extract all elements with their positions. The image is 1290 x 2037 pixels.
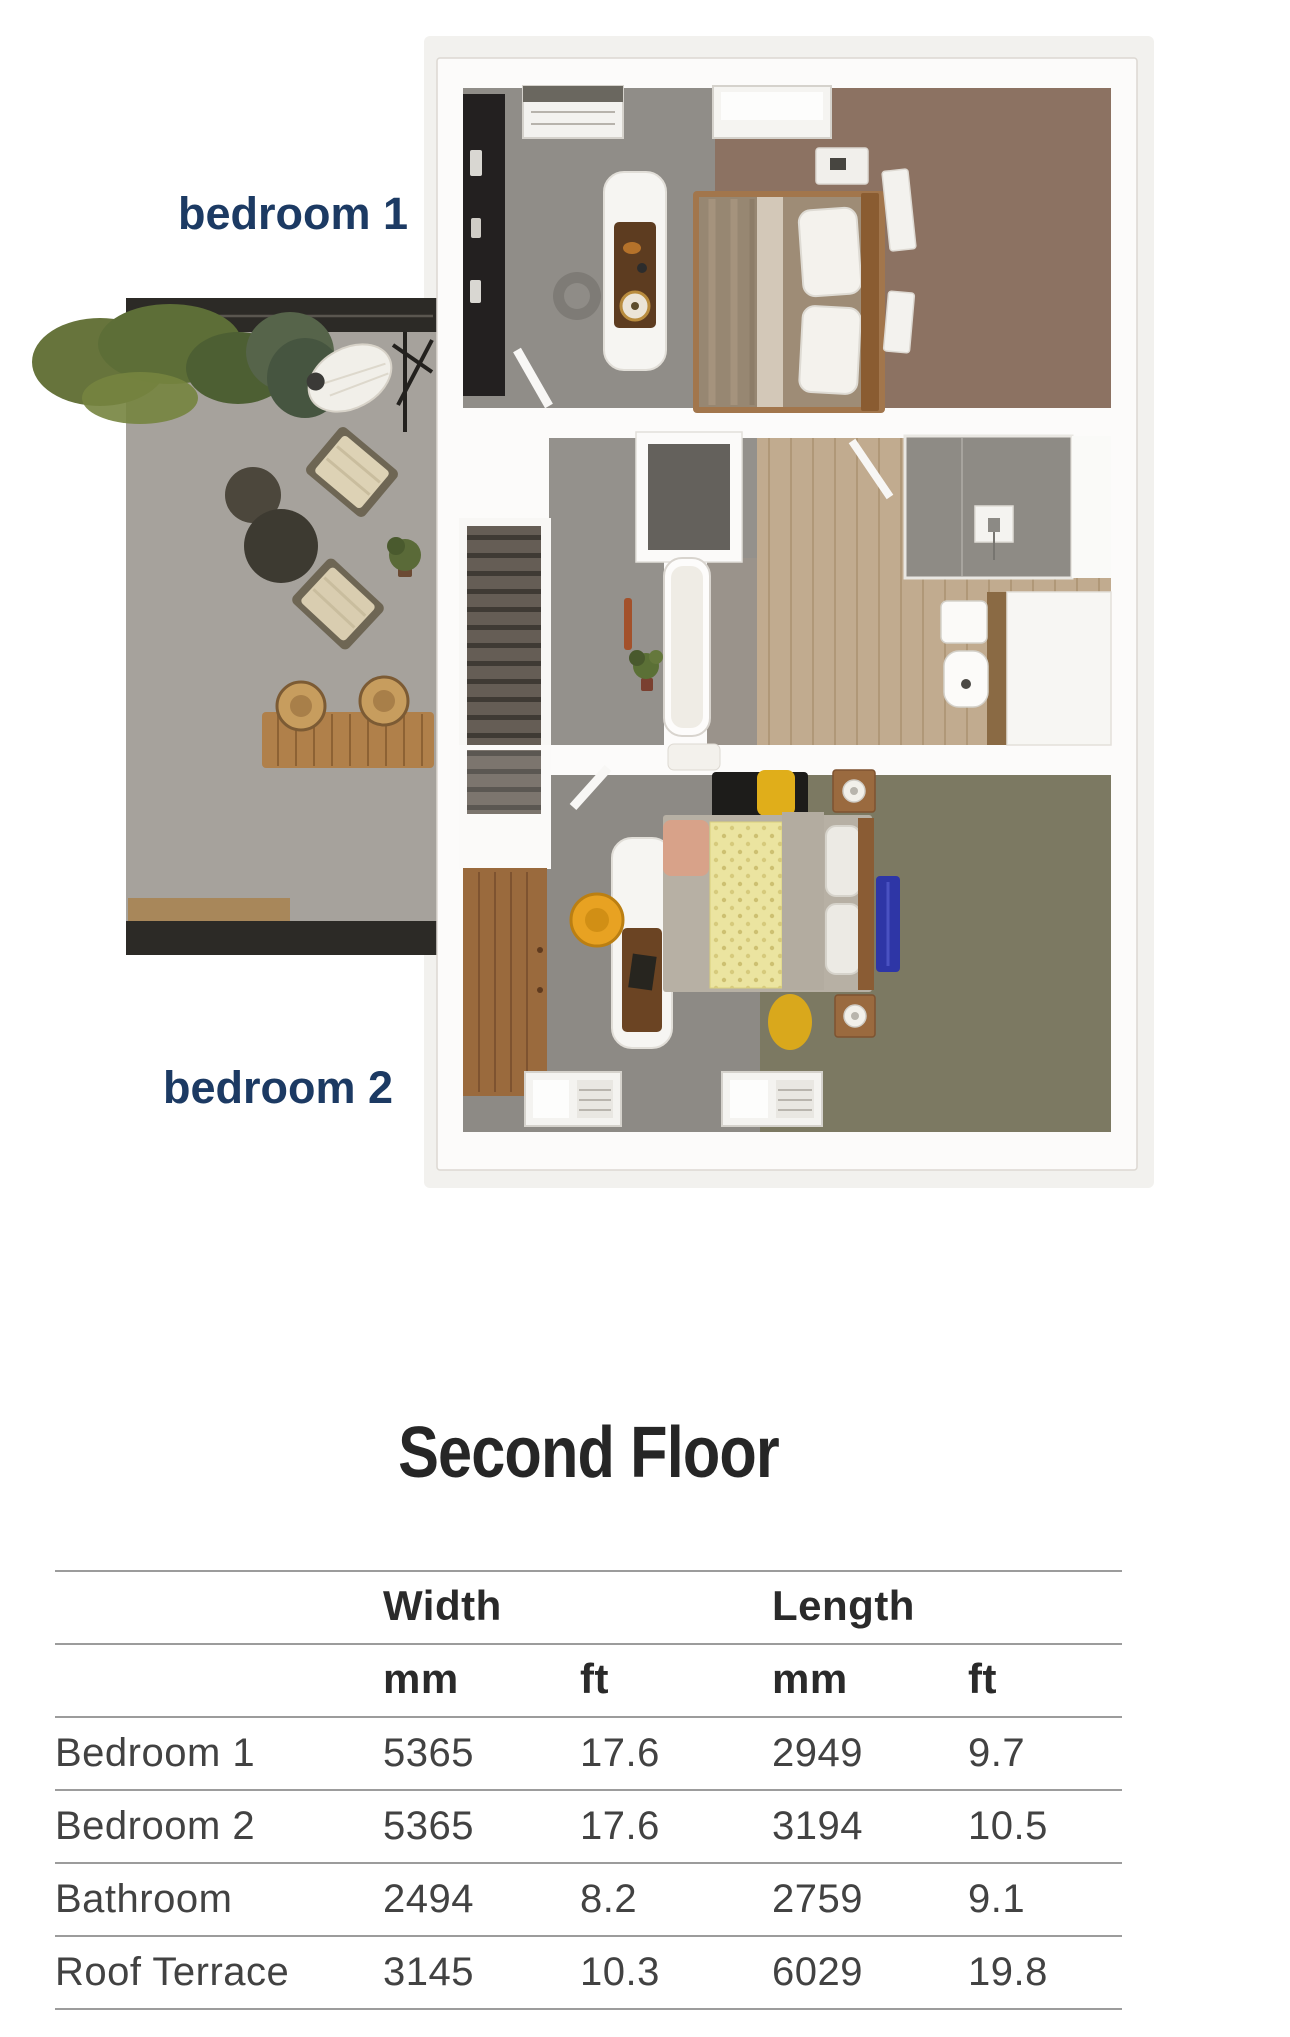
cell-length-mm: 3194 (772, 1804, 968, 1862)
length-group-header: Length (772, 1582, 1122, 1643)
floor-plan-image (0, 0, 1290, 1240)
unit-header-width-ft: ft (580, 1655, 772, 1716)
bedroom-2-room (459, 745, 1111, 1132)
cell-width-ft: 8.2 (580, 1877, 772, 1935)
empty-cell (55, 1630, 383, 1643)
wardrobe (463, 868, 547, 1096)
building (437, 58, 1137, 1170)
nightstand (835, 995, 875, 1037)
cell-length-mm: 2949 (772, 1731, 968, 1789)
radiator (624, 598, 632, 650)
cell-length-mm: 6029 (772, 1950, 968, 2008)
cell-width-mm: 2494 (383, 1877, 580, 1935)
stool (553, 272, 601, 320)
empty-cell (55, 1703, 383, 1716)
nightstand (833, 770, 875, 812)
cell-length-ft: 9.1 (968, 1877, 1122, 1935)
row-label: Bathroom (55, 1877, 383, 1935)
terrace-plants (32, 304, 343, 424)
unit-header-length-mm: mm (772, 1655, 968, 1716)
table-row: Roof Terrace 3145 10.3 6029 19.8 (55, 1937, 1122, 2010)
row-label: Bedroom 1 (55, 1731, 383, 1789)
bedroom-1-room (463, 86, 1111, 413)
dressing-desk (604, 172, 666, 370)
nightstand (816, 148, 868, 184)
bed-1 (693, 191, 885, 413)
table-unit-header-row: mm ft mm ft (55, 1645, 1122, 1718)
bedroom1-label: bedroom 1 (178, 188, 408, 240)
wall-shelf (883, 291, 914, 353)
storage-closet (636, 432, 742, 562)
bathtub (664, 558, 710, 736)
cell-length-ft: 19.8 (968, 1950, 1122, 2008)
bath-mat (668, 744, 720, 770)
cell-width-mm: 3145 (383, 1950, 580, 2008)
table-group-header-row: Width Length (55, 1572, 1122, 1645)
shower (905, 436, 1111, 578)
width-group-header: Width (383, 1582, 772, 1643)
cupboard (1007, 592, 1111, 745)
bedroom2-label: bedroom 2 (163, 1062, 393, 1114)
row-label: Bedroom 2 (55, 1804, 383, 1862)
cell-width-ft: 17.6 (580, 1731, 772, 1789)
dimensions-table: Width Length mm ft mm ft Bedroom 1 5365 … (55, 1570, 1122, 2010)
cell-width-mm: 5365 (383, 1804, 580, 1862)
brochure-page: bedroom 1 bedroom 2 Second Floor Width L… (0, 0, 1290, 2037)
cell-length-mm: 2759 (772, 1877, 968, 1935)
stairwell-corner (459, 745, 551, 869)
table-row: Bedroom 2 5365 17.6 3194 10.5 (55, 1791, 1122, 1864)
bed-2 (663, 812, 874, 992)
cell-width-ft: 10.3 (580, 1950, 772, 2008)
yellow-cushion (757, 770, 795, 816)
blue-rug (876, 876, 900, 972)
window (713, 86, 831, 138)
cell-length-ft: 9.7 (968, 1731, 1122, 1789)
wardrobe (463, 94, 505, 396)
cell-width-mm: 5365 (383, 1731, 580, 1789)
desk-chair (571, 894, 623, 946)
coffee-table (244, 509, 318, 583)
cell-length-ft: 10.5 (968, 1804, 1122, 1862)
yellow-throw (768, 994, 812, 1050)
table-row: Bathroom 2494 8.2 2759 9.1 (55, 1864, 1122, 1937)
unit-header-length-ft: ft (968, 1655, 1122, 1716)
roof-terrace (32, 298, 437, 955)
unit-header-width-mm: mm (383, 1655, 580, 1716)
row-label: Roof Terrace (55, 1950, 383, 2008)
bathroom-partition (987, 592, 1007, 745)
window (722, 1072, 822, 1126)
page-title: Second Floor (135, 1412, 1042, 1494)
window (525, 1072, 621, 1126)
table-row: Bedroom 1 5365 17.6 2949 9.7 (55, 1718, 1122, 1791)
window (523, 86, 623, 138)
cell-width-ft: 17.6 (580, 1804, 772, 1862)
